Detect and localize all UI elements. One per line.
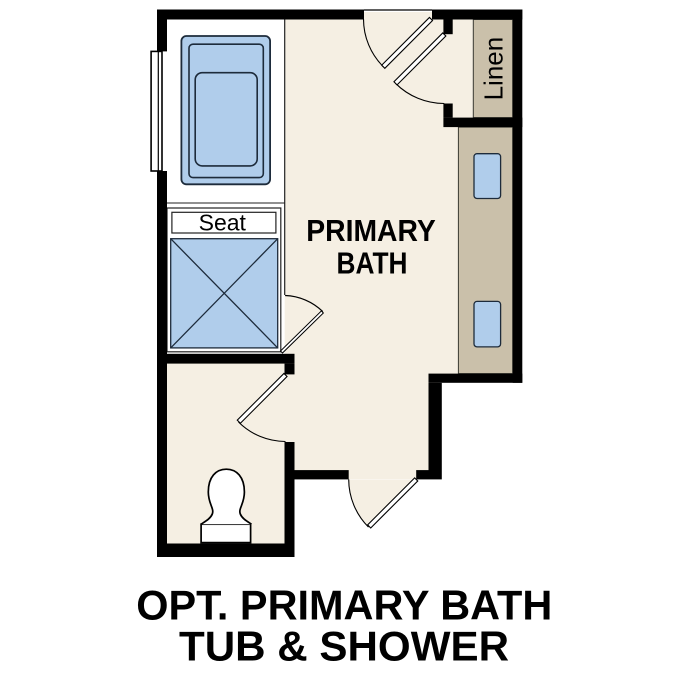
svg-text:PRIMARY: PRIMARY <box>306 213 436 248</box>
svg-text:TUB & SHOWER: TUB & SHOWER <box>179 623 509 670</box>
svg-text:BATH: BATH <box>337 246 408 281</box>
svg-text:Linen: Linen <box>478 37 508 101</box>
svg-text:Seat: Seat <box>199 209 247 235</box>
svg-text:OPT. PRIMARY BATH: OPT. PRIMARY BATH <box>136 582 552 629</box>
